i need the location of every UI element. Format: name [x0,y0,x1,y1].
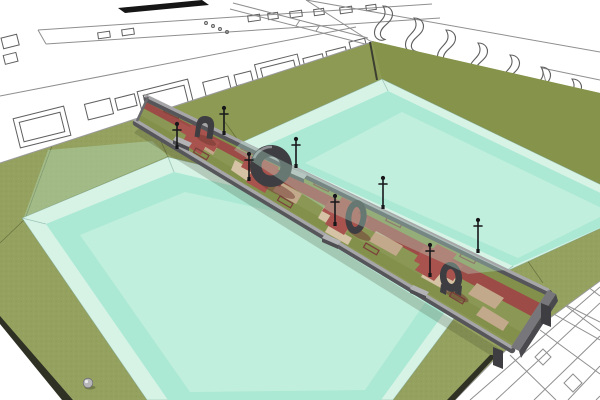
landscape-render [0,0,600,400]
paving-diamond [564,374,582,392]
plan-black-bar [118,0,209,13]
deck-support-leg [541,303,551,327]
render-viewport [0,0,600,400]
